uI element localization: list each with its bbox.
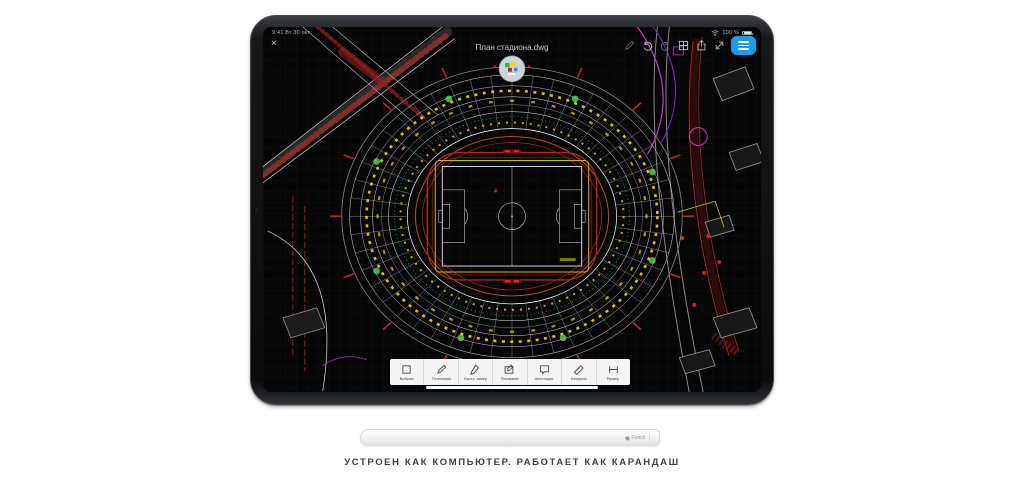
wifi-icon (711, 30, 719, 36)
ipad-screen: 9:41 Вт 30 окт. 100 % × План стадиона.dw… (263, 27, 761, 392)
tool-label: Аннотация (535, 376, 553, 381)
ruler-icon (573, 364, 584, 375)
tool-annotation[interactable]: Аннотация (527, 359, 561, 385)
dimension-icon (608, 364, 619, 375)
annotation-icon (539, 364, 550, 375)
apple-logo-icon (625, 435, 630, 441)
polyline-icon (436, 364, 447, 375)
home-indicator[interactable] (426, 386, 598, 389)
cad-stadium (330, 56, 695, 377)
tool-label: Размер (607, 376, 619, 381)
tool-quick-measure[interactable]: Быстр. замер (458, 359, 492, 385)
marketing-page: 9:41 Вт 30 окт. 100 % × План стадиона.dw… (0, 0, 1024, 489)
select-icon (401, 364, 412, 375)
status-datetime: 9:41 Вт 30 окт. (272, 30, 311, 36)
cad-canvas[interactable] (263, 27, 761, 392)
pencil-label: Pencil (631, 435, 645, 441)
tool-label: Выбрать (399, 376, 414, 381)
undo-icon[interactable] (642, 40, 653, 51)
tool-dimension[interactable]: Размер (596, 359, 630, 385)
tool-label: Рисование (501, 376, 519, 381)
tool-select[interactable]: Выбрать (390, 359, 423, 385)
tool-measure[interactable]: Измерить (561, 359, 595, 385)
resize-icon[interactable] (714, 40, 725, 51)
redo-icon[interactable] (660, 40, 671, 51)
tool-label: Полилиния (432, 376, 451, 381)
pen-icon (470, 364, 481, 375)
pencil-cap-seam (649, 431, 650, 444)
tool-label: Быстр. замер (464, 376, 487, 381)
tool-polyline[interactable]: Полилиния (423, 359, 457, 385)
grid-icon[interactable] (678, 40, 689, 51)
tagline: УСТРОЕН КАК КОМПЬЮТЕР. РАБОТАЕТ КАК КАРА… (0, 457, 1024, 468)
apple-pencil: Pencil (360, 429, 660, 446)
marker-icon[interactable] (624, 40, 635, 51)
share-icon[interactable] (696, 40, 707, 51)
tool-label: Измерить (571, 376, 587, 381)
tool-palette: Выбрать Полилиния Быстр. замер (390, 359, 630, 385)
status-bar: 9:41 Вт 30 окт. 100 % (263, 28, 761, 38)
tool-markup[interactable]: Рисование (492, 359, 526, 385)
markup-icon (504, 364, 515, 375)
battery-icon (742, 31, 752, 36)
title-bar: × План стадиона.dwg (263, 38, 761, 56)
ipad-device: 9:41 Вт 30 окт. 100 % × План стадиона.dw… (250, 15, 774, 405)
layers-icon[interactable] (731, 36, 756, 55)
front-camera (255, 209, 258, 212)
